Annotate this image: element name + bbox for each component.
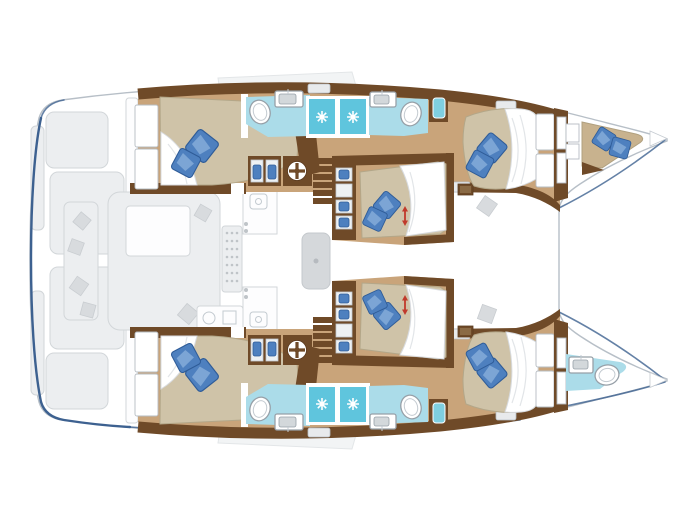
galley-counter [243,190,277,234]
transom-platform [46,112,108,168]
floorplan-svg [0,0,695,521]
cockpit-table [126,206,190,256]
galley-counter [243,287,277,331]
cushion-icon [80,302,96,318]
catamaran-floorplan [0,0,695,521]
bow-hatch [566,144,579,159]
transom-platform [46,353,108,409]
sink-icon [573,360,588,369]
bow-hatch [566,124,579,142]
